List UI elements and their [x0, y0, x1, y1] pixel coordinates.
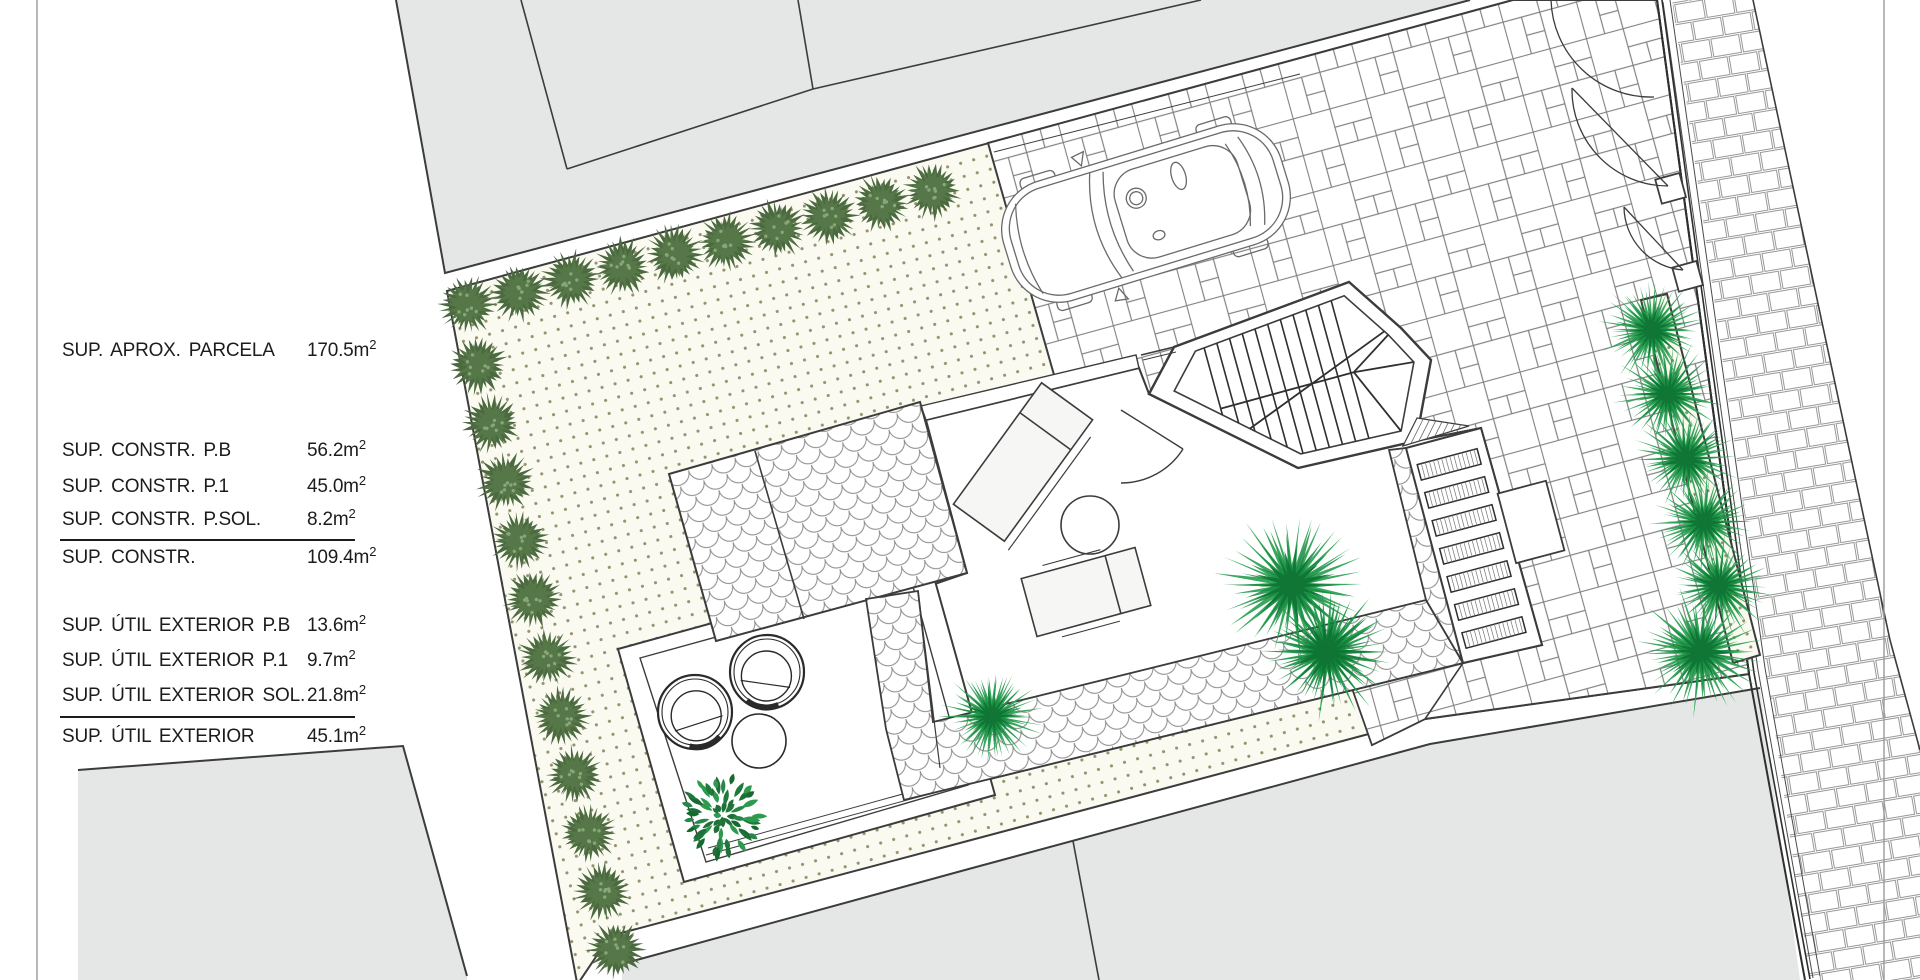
svg-text:SUP. ÚTIL EXTERIOR SOL.: SUP. ÚTIL EXTERIOR SOL. — [62, 684, 305, 706]
svg-text:45.0m2: 45.0m2 — [307, 473, 366, 497]
svg-text:SUP. CONSTR. P.SOL.: SUP. CONSTR. P.SOL. — [62, 509, 261, 530]
svg-text:SUP. CONSTR. P.1: SUP. CONSTR. P.1 — [62, 476, 229, 497]
svg-text:170.5m2: 170.5m2 — [307, 337, 376, 361]
svg-text:SUP. ÚTIL EXTERIOR P.1: SUP. ÚTIL EXTERIOR P.1 — [62, 649, 288, 671]
svg-text:9.7m2: 9.7m2 — [307, 647, 355, 671]
svg-text:SUP. CONSTR.: SUP. CONSTR. — [62, 547, 195, 568]
svg-text:8.2m2: 8.2m2 — [307, 506, 355, 530]
svg-text:56.2m2: 56.2m2 — [307, 437, 366, 461]
svg-text:109.4m2: 109.4m2 — [307, 544, 376, 568]
svg-text:SUP. APROX. PARCELA: SUP. APROX. PARCELA — [62, 340, 275, 361]
svg-text:SUP. ÚTIL EXTERIOR: SUP. ÚTIL EXTERIOR — [62, 725, 254, 747]
svg-text:SUP. CONSTR. P.B: SUP. CONSTR. P.B — [62, 440, 231, 461]
svg-text:21.8m2: 21.8m2 — [307, 682, 366, 706]
svg-text:13.6m2: 13.6m2 — [307, 612, 366, 636]
svg-text:45.1m2: 45.1m2 — [307, 723, 366, 747]
svg-text:SUP. ÚTIL EXTERIOR P.B: SUP. ÚTIL EXTERIOR P.B — [62, 614, 290, 636]
